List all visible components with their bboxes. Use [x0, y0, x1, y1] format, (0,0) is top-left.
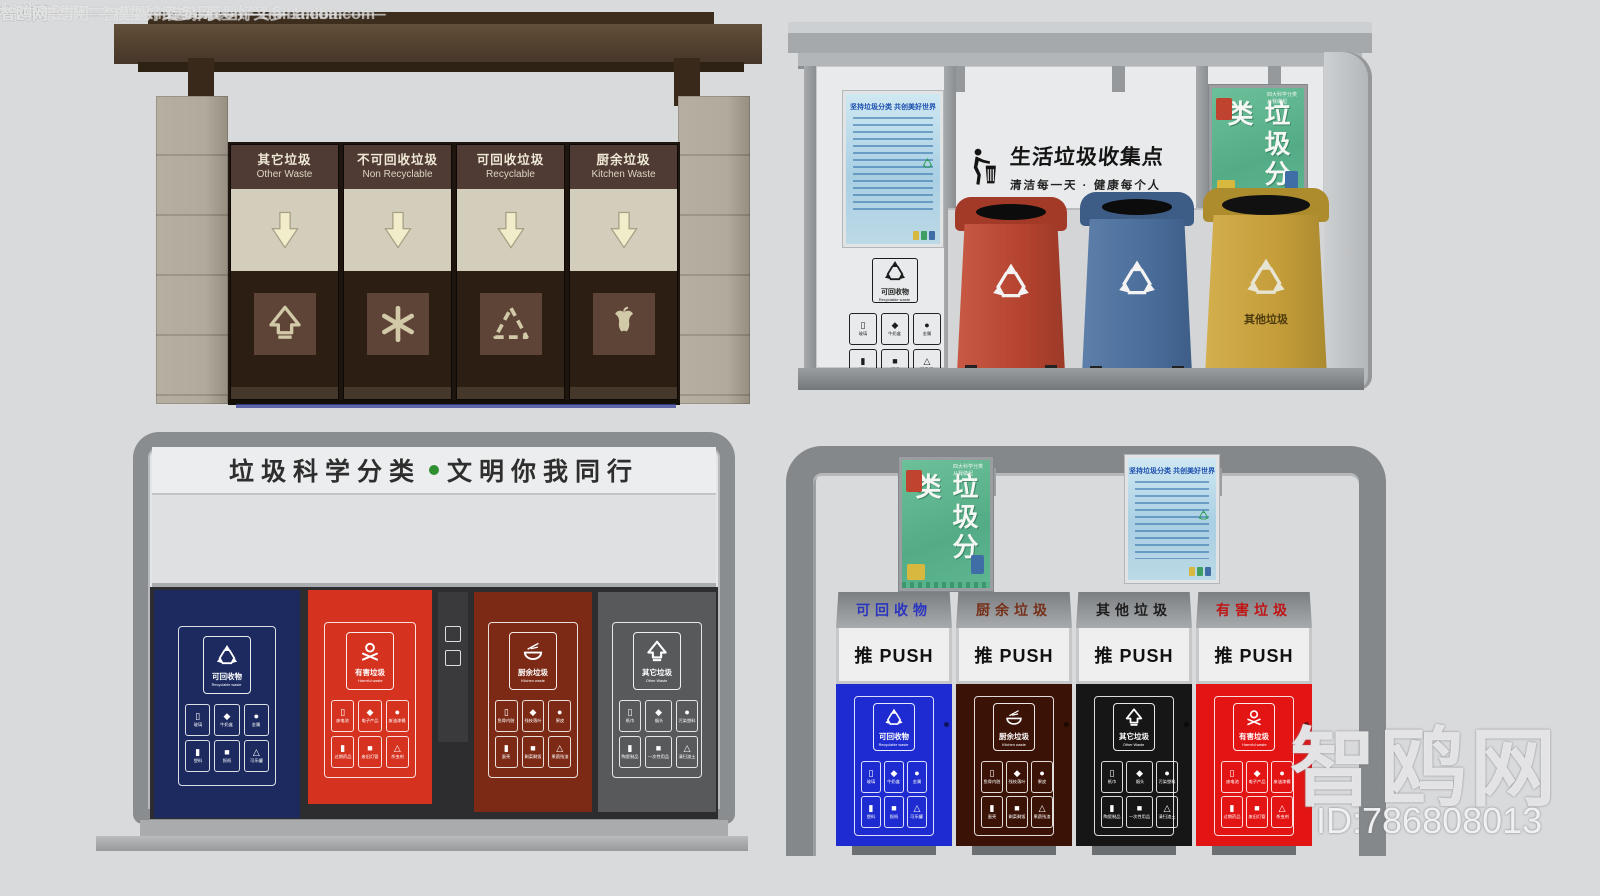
poster-waste-sorting-green: 垃圾分类 四大科学分类 从我做起 — [902, 460, 990, 588]
waste-item-label: 玻璃 — [859, 331, 868, 337]
poster-note: 四大科学分类 从我做起 — [953, 464, 987, 478]
bin-items-grid: ▯玻璃◆牛奶盒●金属▮塑料■报纸△可乐罐 — [185, 704, 269, 772]
waste-item-label: 鱼骨内脏 — [984, 779, 1001, 785]
waste-item-cell: ▯玻璃 — [849, 313, 877, 345]
compartment-other-waste: 其它垃圾Other Waste — [231, 145, 338, 399]
waste-item-label: 电子产品 — [1249, 779, 1266, 785]
header-text-right: 文明你我同行 — [447, 452, 639, 488]
waste-item-icon: ▯ — [628, 708, 633, 717]
unit-sticker-cn: 其它垃圾 — [1119, 731, 1149, 742]
waste-item-icon: ● — [557, 708, 562, 717]
push-door[interactable]: 推 PUSH — [1196, 628, 1312, 684]
waste-item-cell: ◆电子产品 — [358, 700, 381, 732]
bin-label-en: Harmful waste — [358, 678, 382, 682]
waste-item-icon: ▮ — [340, 744, 345, 753]
waste-item-label: 牛奶盒 — [888, 779, 901, 785]
waste-item-icon: ● — [1039, 769, 1044, 778]
waste-item-cell: ▮陶瓷制品 — [619, 736, 641, 768]
kitchen-waste-icon — [520, 639, 546, 665]
push-door[interactable]: 推 PUSH — [1076, 628, 1192, 684]
waste-item-label: 纸巾 — [626, 718, 635, 724]
waste-item-cell: △果蔬残渣 — [548, 736, 571, 768]
waste-item-cell: ■一次性用品 — [1126, 796, 1153, 828]
waste-item-icon: △ — [914, 804, 921, 813]
bin-label-cn: 厨余垃圾 — [518, 667, 548, 678]
waste-item-label: 报纸 — [223, 758, 232, 764]
waste-item-icon: △ — [1039, 804, 1046, 813]
unit-label: 其他垃圾 — [1096, 600, 1172, 620]
waste-item-icon: ● — [1279, 769, 1284, 778]
waste-item-cell: ■一次性用品 — [645, 736, 672, 768]
waste-item-icon: ▮ — [1230, 804, 1235, 813]
waste-item-icon: ◆ — [224, 712, 231, 721]
bin-kitchen: 厨余垃圾 Kitchen waste ▯鱼骨内脏◆残枝落叶●果皮▮蛋壳■剩菜剩饭… — [474, 592, 592, 812]
waste-item-icon: ■ — [224, 748, 229, 757]
waste-item-cell: ▯废电池 — [331, 700, 354, 732]
stone-pillar-left — [156, 96, 228, 404]
waste-item-cell: ●污染塑料 — [1156, 761, 1178, 793]
waste-item-cell: ●金属 — [913, 313, 941, 345]
waste-item-icon: ◆ — [1014, 769, 1021, 778]
recycle-icon — [883, 707, 905, 729]
waste-item-cell: △果蔬残渣 — [1031, 796, 1053, 828]
waste-item-cell: △杀虫剂 — [386, 736, 409, 768]
screw — [944, 722, 949, 727]
waste-item-label: 残枝落叶 — [1009, 779, 1026, 785]
waste-item-cell: ■废旧灯管 — [1246, 796, 1268, 828]
bin-label-en: Kitchen waste — [521, 678, 545, 682]
push-door[interactable]: 推 PUSH — [836, 628, 952, 684]
poster-red-bin — [1216, 98, 1232, 120]
watermark-row: 智鸥网 — [0, 0, 48, 24]
station-open-shelf — [152, 495, 716, 587]
compartment-label-en: Non Recyclable — [362, 169, 432, 181]
waste-item-cell: △可乐罐 — [907, 796, 927, 828]
poster-title: 坚持垃圾分类 共创美好世界 — [1128, 466, 1216, 476]
unit-label: 可回收物 — [856, 600, 932, 620]
waste-item-label: 烟头 — [1135, 779, 1144, 785]
push-unit-kitchen: 厨余垃圾 推 PUSH 厨余垃圾 Kitchen waste ▯鱼骨内脏◆残枝落… — [956, 592, 1072, 846]
bin-harmful: 有害垃圾 Harmful waste ▯废电池◆电子产品●废油漆桶▮过期药品■废… — [308, 590, 432, 804]
unit-foot — [1212, 846, 1296, 855]
waste-item-label: 玻璃 — [193, 722, 202, 728]
poster-blue-bin — [971, 555, 984, 574]
unit-body: 其它垃圾 Other Waste ▯纸巾◆烟头●污染塑料▮陶瓷制品■一次性用品△… — [1076, 684, 1192, 846]
waste-item-cell: ◆电子产品 — [1246, 761, 1268, 793]
waste-item-icon: ■ — [1254, 804, 1259, 813]
waste-item-cell: ■报纸 — [214, 740, 239, 772]
compartment-label-cn: 可回收垃圾 — [477, 153, 545, 169]
push-unit-other: 其他垃圾 推 PUSH 其它垃圾 Other Waste ▯纸巾◆烟头●污染塑料… — [1076, 592, 1192, 846]
recycle-icon — [1114, 257, 1160, 303]
arrow-down-icon — [496, 210, 526, 250]
arrow-down-icon — [383, 210, 413, 250]
waste-item-cell: ▯纸巾 — [1101, 761, 1123, 793]
waste-item-icon: △ — [684, 744, 691, 753]
bin-items-grid: ▯废电池◆电子产品●废油漆桶▮过期药品■废旧灯管△杀虫剂 — [331, 700, 409, 768]
product-render-canvas: 其它垃圾Other Waste 不可回收垃圾Non Recyclable 可回收… — [0, 0, 1600, 896]
waste-item-icon: ■ — [530, 744, 535, 753]
waste-item-label: 清扫渣土 — [1159, 814, 1176, 820]
compartment-recyclable: 可回收垃圾Recyclable — [457, 145, 564, 399]
waste-item-label: 果皮 — [555, 718, 564, 724]
cabinet-base-trim — [236, 404, 676, 408]
watermark-row: 智鸥网 — — — [0, 0, 89, 24]
waste-item-icon: △ — [394, 744, 401, 753]
unit-items-grid: ▯鱼骨内脏◆残枝落叶●果皮▮蛋壳■剩菜剩饭△果蔬残渣 — [981, 761, 1047, 828]
unit-body: 可回收物 Recyclable waste ▯玻璃◆牛奶盒●金属▮塑料■报纸△可… — [836, 684, 952, 846]
compartment-kitchen-waste: 厨余垃圾Kitchen Waste — [570, 145, 677, 399]
waste-item-icon: ▯ — [869, 769, 874, 778]
waste-item-label: 残枝落叶 — [524, 718, 541, 724]
bin-opening — [1222, 195, 1310, 215]
waste-item-icon: △ — [924, 357, 931, 366]
waste-item-icon: ■ — [891, 804, 896, 813]
waste-item-label: 陶瓷制品 — [1104, 814, 1121, 820]
waste-item-label: 可乐罐 — [250, 758, 263, 764]
other-waste-icon — [644, 639, 670, 665]
waste-item-icon: ▮ — [195, 748, 200, 757]
waste-item-cell: ▯废电池 — [1221, 761, 1243, 793]
compartment-non-recyclable: 不可回收垃圾Non Recyclable — [344, 145, 451, 399]
waste-item-cell: ●污染塑料 — [676, 700, 698, 732]
waste-item-label: 鱼骨内脏 — [498, 718, 515, 724]
waste-item-icon: ■ — [367, 744, 372, 753]
sorting-cabinet: 其它垃圾Other Waste 不可回收垃圾Non Recyclable 可回收… — [228, 142, 680, 402]
unit-items-grid: ▯纸巾◆烟头●污染塑料▮陶瓷制品■一次性用品△清扫渣土 — [1101, 761, 1167, 828]
placard-label-cn: 可回收物 — [881, 287, 909, 297]
poster-mini-bins — [1189, 567, 1211, 576]
compartment-label-en: Recyclable — [486, 169, 535, 181]
waste-item-label: 果蔬残渣 — [1034, 814, 1051, 820]
unit-sticker-cn: 可回收物 — [879, 731, 909, 742]
wood-roof-underside — [138, 62, 744, 72]
waste-item-cell: ■报纸 — [884, 796, 904, 828]
bin-opening — [1102, 199, 1173, 215]
waste-item-label: 一次性用品 — [648, 754, 669, 760]
asterisk-icon — [378, 304, 418, 344]
waste-item-label: 陶瓷制品 — [622, 754, 639, 760]
waste-item-cell: ▯玻璃 — [185, 704, 210, 736]
waste-item-label: 一次性用品 — [1129, 814, 1150, 820]
waste-item-icon: △ — [556, 744, 563, 753]
waste-item-icon: ▯ — [195, 712, 200, 721]
waste-item-cell: △可乐罐 — [244, 740, 269, 772]
waste-item-icon: ▯ — [1110, 769, 1115, 778]
compartment-label-cn: 其它垃圾 — [257, 153, 311, 169]
unit-sticker-cn: 有害垃圾 — [1239, 731, 1269, 742]
waste-item-cell: △清扫渣土 — [1156, 796, 1178, 828]
watermark-row: — — — — — [0, 0, 77, 18]
waste-item-icon: ■ — [1137, 804, 1142, 813]
harmful-waste-icon — [357, 639, 383, 665]
waste-item-label: 清扫渣土 — [679, 754, 696, 760]
roof-strut — [1112, 66, 1125, 92]
waste-item-icon: ● — [254, 712, 259, 721]
cigarette-disposal-divider — [438, 592, 468, 742]
unit-items-grid: ▯废电池◆电子产品●废油漆桶▮过期药品■废旧灯管△杀虫剂 — [1221, 761, 1287, 828]
recycle-icon — [214, 643, 240, 669]
waste-item-cell: ■剩菜剩饭 — [522, 736, 545, 768]
waste-item-icon: △ — [1279, 804, 1286, 813]
waste-item-icon: ● — [395, 708, 400, 717]
waste-item-icon: ◆ — [530, 708, 537, 717]
waste-item-cell: ▯鱼骨内脏 — [495, 700, 518, 732]
poster-waste-sorting-blue: 坚持垃圾分类 共创美好世界 — [846, 94, 940, 244]
apple-core-icon — [604, 304, 644, 344]
waste-item-icon: ◆ — [892, 321, 899, 330]
waste-item-cell: ▮蛋壳 — [495, 736, 518, 768]
waste-item-cell: ■剩菜剩饭 — [1006, 796, 1028, 828]
waste-item-icon: ▯ — [1230, 769, 1235, 778]
bin-label-cn: 其它垃圾 — [642, 667, 672, 678]
waste-item-icon: ▮ — [869, 804, 874, 813]
waste-item-label: 蛋壳 — [988, 814, 997, 820]
waste-item-label: 蛋壳 — [502, 754, 511, 760]
waste-item-icon: ▮ — [504, 744, 509, 753]
unit-label: 有害垃圾 — [1216, 600, 1292, 620]
screw — [1064, 722, 1069, 727]
waste-item-cell: ▯纸巾 — [619, 700, 641, 732]
shelter-title: 生活垃圾收集点 — [1009, 141, 1165, 171]
poster-title: 坚持垃圾分类 共创美好世界 — [846, 102, 940, 112]
recycle-icon — [1242, 255, 1290, 303]
waste-item-icon: △ — [1164, 804, 1171, 813]
waste-item-label: 污染塑料 — [1159, 779, 1176, 785]
waste-item-label: 金属 — [913, 779, 922, 785]
waste-item-label: 剩菜剩饭 — [1009, 814, 1026, 820]
poster-waste-sorting-green: 垃圾分类 四大科学分类 从我做起 — [1212, 88, 1304, 204]
waste-item-label: 玻璃 — [867, 779, 876, 785]
waste-item-icon: ▮ — [1110, 804, 1115, 813]
unit-sticker-en: Kitchen waste — [1002, 742, 1026, 746]
waste-item-icon: ▮ — [990, 804, 995, 813]
waste-item-cell: ●果皮 — [1031, 761, 1053, 793]
waste-item-icon: ● — [684, 708, 689, 717]
bin-label-en: Other Waste — [646, 678, 667, 682]
waste-item-cell: ▯玻璃 — [861, 761, 881, 793]
push-label: 推 PUSH — [1094, 642, 1173, 668]
bin-other: 其它垃圾 Other Waste ▯纸巾◆烟头●污染塑料▮陶瓷制品■一次性用品△… — [598, 592, 716, 812]
bin-label-cn: 可回收物 — [212, 671, 242, 682]
compartment-label-en: Kitchen Waste — [591, 169, 655, 181]
waste-item-label: 电子产品 — [361, 718, 378, 724]
arrow-down-icon — [609, 210, 639, 250]
waste-item-label: 污染塑料 — [679, 718, 696, 724]
unit-sticker-en: Other Waste — [1123, 742, 1144, 746]
placard-label-en: Recyclable waste — [879, 297, 911, 302]
bin-items-grid: ▯纸巾◆烟头●污染塑料▮陶瓷制品■一次性用品△清扫渣土 — [619, 700, 695, 768]
unit-body: 厨余垃圾 Kitchen waste ▯鱼骨内脏◆残枝落叶●果皮▮蛋壳■剩菜剩饭… — [956, 684, 1072, 846]
waste-item-cell: ◆烟头 — [1126, 761, 1153, 793]
unit-sticker-cn: 厨余垃圾 — [999, 731, 1029, 742]
waste-item-icon: ◆ — [1136, 769, 1143, 778]
waste-item-label: 可乐罐 — [911, 814, 924, 820]
unit-foot — [972, 846, 1056, 855]
waste-item-cell: ◆残枝落叶 — [522, 700, 545, 732]
waste-item-label: 塑料 — [193, 758, 202, 764]
waste-item-cell: ●废油漆桶 — [386, 700, 409, 732]
recyclable-placard: 可回收物 Recyclable waste ▯玻璃◆牛奶盒●金属▮塑料■报纸△可… — [852, 258, 938, 358]
compartment-label-cn: 厨余垃圾 — [596, 153, 650, 169]
waste-item-cell: ■废旧灯管 — [358, 736, 381, 768]
waste-item-label: 废电池 — [336, 718, 349, 724]
unit-sticker-en: Recyclable waste — [879, 742, 909, 746]
push-label: 推 PUSH — [854, 642, 933, 668]
push-label: 推 PUSH — [1214, 642, 1293, 668]
waste-item-cell: ▮过期药品 — [1221, 796, 1243, 828]
waste-item-icon: ▯ — [861, 321, 866, 330]
waste-item-icon: ▯ — [504, 708, 509, 717]
waste-item-cell: ◆牛奶盒 — [214, 704, 239, 736]
bin-label-cn: 有害垃圾 — [355, 667, 385, 678]
arrow-down-icon — [270, 210, 300, 250]
waste-item-label: 废旧灯管 — [361, 754, 378, 760]
station-header: 垃圾科学分类 文明你我同行 — [152, 447, 716, 495]
waste-item-cell: ▮塑料 — [185, 740, 210, 772]
push-door[interactable]: 推 PUSH — [956, 628, 1072, 684]
waste-item-icon: ◆ — [891, 769, 898, 778]
recycle-icon — [1197, 509, 1210, 522]
recycle-icon — [882, 259, 908, 285]
poster-yellow-bin — [907, 564, 925, 580]
waste-item-cell: ◆牛奶盒 — [881, 313, 909, 345]
waste-item-icon: ◆ — [1254, 769, 1261, 778]
waste-item-label: 废油漆桶 — [389, 718, 406, 724]
waste-item-label: 塑料 — [867, 814, 876, 820]
compartment-label-en: Other Waste — [257, 169, 313, 181]
litter-person-icon — [966, 144, 1000, 190]
waste-item-cell: ▮过期药品 — [331, 736, 354, 768]
waste-item-cell: ●金属 — [907, 761, 927, 793]
station-platform-step — [140, 820, 728, 836]
other-waste-icon — [1123, 707, 1145, 729]
waste-item-icon: ■ — [1014, 804, 1019, 813]
poster-grass — [902, 582, 990, 588]
waste-item-icon: ● — [924, 321, 929, 330]
green-dot — [429, 465, 439, 475]
waste-item-label: 过期药品 — [1224, 814, 1241, 820]
poster-red-bin — [906, 470, 922, 492]
push-label: 推 PUSH — [974, 642, 1053, 668]
bin-items-grid: ▯鱼骨内脏◆残枝落叶●果皮▮蛋壳■剩菜剩饭△果蔬残渣 — [495, 700, 571, 768]
waste-item-icon: ◆ — [367, 708, 374, 717]
waste-item-cell: ▮蛋壳 — [981, 796, 1003, 828]
waste-item-label: 废旧灯管 — [1249, 814, 1266, 820]
unit-foot — [1092, 846, 1176, 855]
kitchen-waste-icon — [1003, 707, 1025, 729]
yellow-wheeled-bin: 其他垃圾 — [1203, 188, 1329, 386]
waste-item-cell: ◆牛奶盒 — [884, 761, 904, 793]
waste-item-cell: △清扫渣土 — [676, 736, 698, 768]
harmful-waste-icon — [1243, 707, 1265, 729]
screw — [1184, 722, 1189, 727]
wall-mullion — [804, 66, 816, 368]
bin-recyclable: 可回收物 Recyclable waste ▯玻璃◆牛奶盒●金属▮塑料■报纸△可… — [154, 590, 300, 818]
waste-item-icon: ◆ — [655, 708, 662, 717]
bin-label-en: Recyclable waste — [212, 682, 242, 686]
other-waste-icon — [264, 303, 306, 345]
waste-item-icon: ■ — [892, 357, 897, 366]
waste-item-label: 牛奶盒 — [889, 331, 902, 337]
waste-item-label: 金属 — [252, 722, 261, 728]
bin-label: 其他垃圾 — [1244, 311, 1288, 327]
waste-item-label: 果皮 — [1038, 779, 1047, 785]
waste-item-label: 金属 — [923, 331, 932, 337]
recycle-icon — [988, 260, 1034, 306]
waste-item-icon: ▮ — [628, 744, 633, 753]
waste-item-icon: △ — [253, 748, 260, 757]
waste-item-icon: ▯ — [340, 708, 345, 717]
bin-opening — [976, 204, 1045, 220]
waste-item-icon: ● — [1164, 769, 1169, 778]
waste-item-label: 报纸 — [890, 814, 899, 820]
poster-waste-sorting-blue: 坚持垃圾分类 共创美好世界 — [1128, 458, 1216, 580]
poster-note: 四大科学分类 从我做起 — [1267, 92, 1301, 106]
compartment-label-cn: 不可回收垃圾 — [357, 153, 438, 169]
waste-item-label: 烟头 — [654, 718, 663, 724]
header-text-left: 垃圾科学分类 — [229, 452, 421, 488]
station-platform — [96, 836, 748, 851]
waste-item-cell: ▮塑料 — [861, 796, 881, 828]
shelter-side-panel — [1324, 52, 1372, 390]
waste-item-icon: ▮ — [861, 357, 866, 366]
poster-mini-bins — [913, 231, 935, 240]
unit-label: 厨余垃圾 — [976, 600, 1052, 620]
stone-pillar-right — [678, 96, 750, 404]
waste-item-label: 剩菜剩饭 — [524, 754, 541, 760]
waste-item-cell: ◆烟头 — [645, 700, 672, 732]
waste-item-cell: ●金属 — [244, 704, 269, 736]
waste-item-label: 过期药品 — [334, 754, 351, 760]
red-wheeled-bin — [955, 197, 1067, 383]
shelter-subtitle: 清洁每一天 · 健康每个人 — [1009, 177, 1164, 193]
watermark-row: — — 智鸥网 — [0, 0, 89, 24]
waste-item-label: 果蔬残渣 — [551, 754, 568, 760]
waste-item-label: 牛奶盒 — [221, 722, 234, 728]
waste-item-label: 废油漆桶 — [1274, 779, 1291, 785]
waste-item-icon: ● — [914, 769, 919, 778]
waste-item-icon: ■ — [656, 744, 661, 753]
waste-item-label: 杀虫剂 — [391, 754, 404, 760]
waste-item-icon: ▯ — [990, 769, 995, 778]
waste-item-label: 废电池 — [1226, 779, 1239, 785]
recycle-icon — [921, 157, 934, 170]
unit-sticker-en: Harmful waste — [1242, 742, 1266, 746]
unit-foot — [852, 846, 936, 855]
waste-item-cell: ●果皮 — [548, 700, 571, 732]
waste-item-cell: ▯鱼骨内脏 — [981, 761, 1003, 793]
shelter-base — [798, 368, 1364, 390]
waste-item-cell: ◆残枝落叶 — [1006, 761, 1028, 793]
recycle-triangle-icon — [490, 303, 532, 345]
unit-items-grid: ▯玻璃◆牛奶盒●金属▮塑料■报纸△可乐罐 — [861, 761, 927, 828]
push-unit-recyclable: 可回收物 推 PUSH 可回收物 Recyclable waste ▯玻璃◆牛奶… — [836, 592, 952, 846]
model-id-watermark: ID:786808013 — [1316, 800, 1542, 842]
waste-item-cell: ▮陶瓷制品 — [1101, 796, 1123, 828]
blue-wheeled-bin — [1080, 192, 1194, 384]
waste-item-label: 杀虫剂 — [1276, 814, 1289, 820]
waste-item-label: 纸巾 — [1108, 779, 1117, 785]
shelter-roof — [788, 33, 1372, 53]
